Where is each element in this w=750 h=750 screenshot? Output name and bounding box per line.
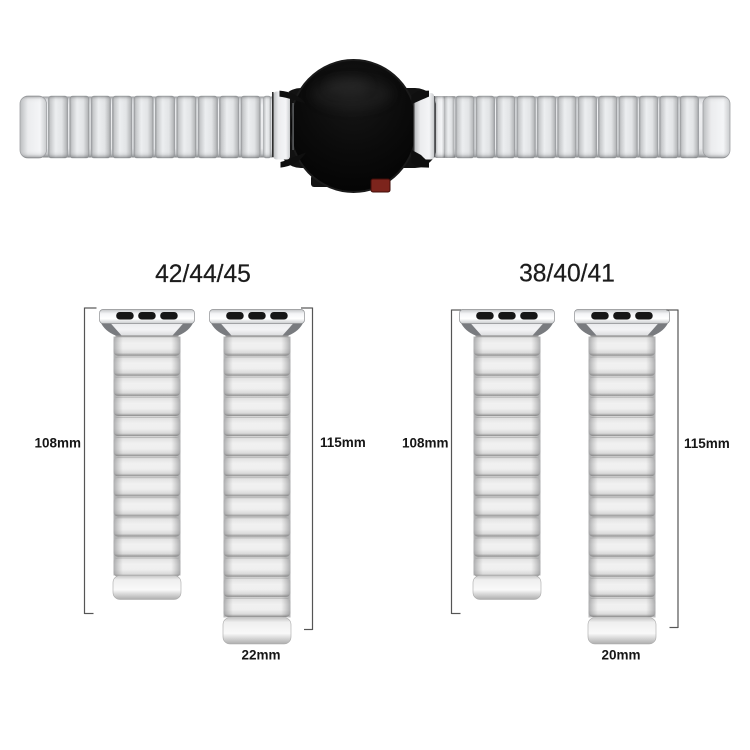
svg-text:38/40/41: 38/40/41 <box>519 261 615 288</box>
svg-text:115mm: 115mm <box>684 436 730 451</box>
svg-text:22mm: 22mm <box>241 648 280 663</box>
svg-text:20mm: 20mm <box>601 648 640 663</box>
svg-text:42/44/45: 42/44/45 <box>155 261 251 288</box>
svg-text:108mm: 108mm <box>34 436 81 451</box>
svg-text:115mm: 115mm <box>320 435 366 450</box>
svg-text:108mm: 108mm <box>402 436 449 451</box>
